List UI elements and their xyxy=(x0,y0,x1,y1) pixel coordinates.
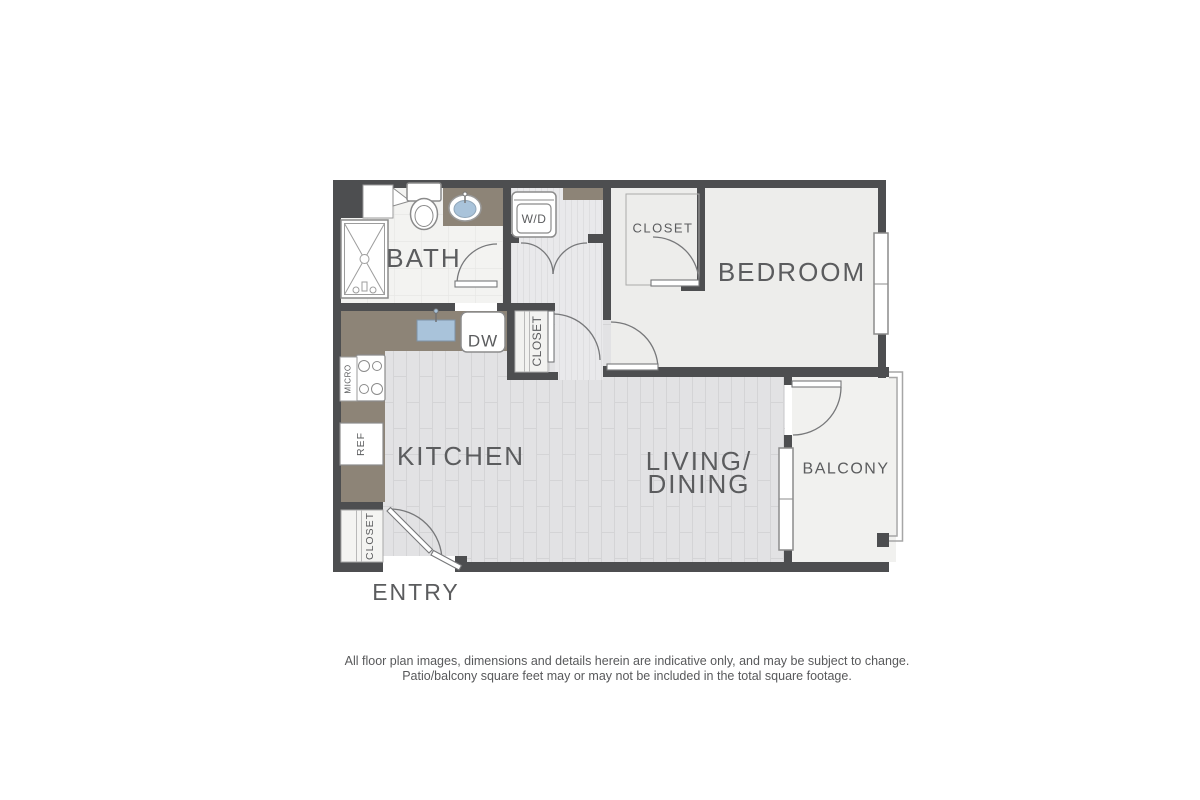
entry-closet-label: CLOSET xyxy=(364,512,376,560)
washer-dryer-label: W/D xyxy=(522,212,547,226)
bedroom-label: BEDROOM xyxy=(718,257,866,287)
microwave-label: MICRO xyxy=(344,364,353,393)
disclaimer: All floor plan images, dimensions and de… xyxy=(0,654,1200,683)
balcony-label: BALCONY xyxy=(803,461,890,478)
bedroom-window xyxy=(874,233,888,334)
toilet xyxy=(407,183,441,230)
stove xyxy=(356,355,385,401)
disclaimer-line1: All floor plan images, dimensions and de… xyxy=(0,654,1200,669)
bath-niche xyxy=(363,185,393,218)
bedroom-closet-label: CLOSET xyxy=(632,221,693,236)
wall-laundry-door-stub-right xyxy=(588,234,603,243)
shower xyxy=(341,220,388,298)
hall-closet-label: CLOSET xyxy=(530,315,544,366)
dishwasher-label: DW xyxy=(468,332,498,351)
refrigerator-label: REF xyxy=(355,432,367,456)
kitchen-label: KITCHEN xyxy=(397,441,525,471)
wall-balcony-bottom-left xyxy=(784,548,792,572)
wall-bath-laundry xyxy=(503,188,511,311)
disclaimer-line2: Patio/balcony square feet may or may not… xyxy=(0,669,1200,684)
wall-entry-closet-top xyxy=(333,502,383,510)
laundry-shelf xyxy=(563,188,603,200)
wall-hall-closet-left xyxy=(507,303,515,380)
wall-hall-closet-bottom xyxy=(507,372,558,380)
wall-bedroom-left-upper xyxy=(603,188,611,320)
entry-label: ENTRY xyxy=(372,579,460,605)
balcony-window xyxy=(779,448,793,550)
wall-balcony-corner-stub xyxy=(877,533,889,547)
wall-bath-corner-block xyxy=(341,188,363,218)
wall-bath-kitchen-right xyxy=(497,303,555,311)
wall-balcony-stub-top xyxy=(784,377,792,385)
bath-label: BATH xyxy=(386,243,461,273)
floor-plan-page: BATH BEDROOM KITCHEN LIVING/ DINING BALC… xyxy=(0,0,1200,800)
living-dining-label-line2: DINING xyxy=(648,469,751,499)
